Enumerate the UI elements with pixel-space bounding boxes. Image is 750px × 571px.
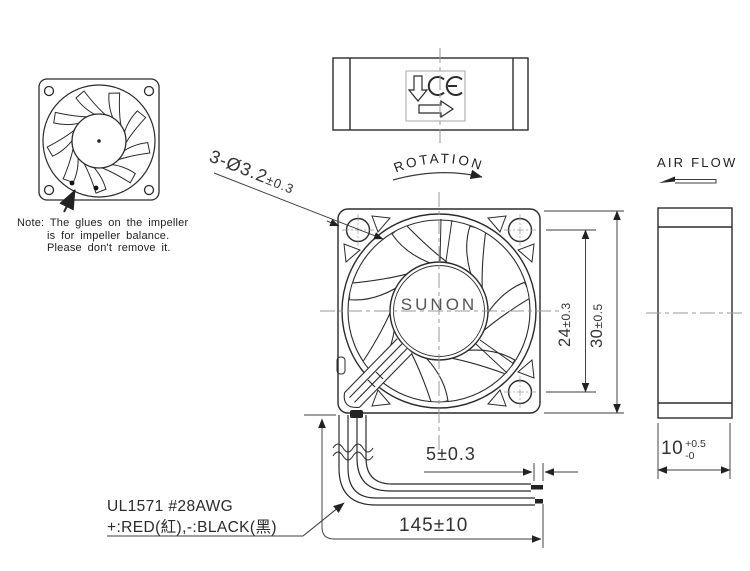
top-view — [333, 58, 528, 130]
rotation-label: ROTATION — [392, 151, 486, 176]
wire-spec-line1: UL1571 #28AWG — [107, 498, 233, 516]
drawing-linework: SUNON ROTATION — [0, 0, 750, 571]
hole-pitch-dimension: 24±0.3 — [556, 302, 575, 347]
wire-length-dimension: 145±10 — [399, 515, 468, 537]
wire-spec-line2: +:RED(紅),-:BLACK(黑) — [107, 515, 277, 537]
wire-spec-leader-arrow — [303, 503, 344, 536]
tinned-lead-end — [535, 499, 543, 504]
hole-leader-arrow — [214, 173, 383, 239]
lead-tin-dimension: 5±0.3 — [426, 444, 476, 465]
impeller-note-line1: Note: The glues on the impeller — [17, 217, 188, 229]
air-flow-label: AIR FLOW — [657, 155, 737, 170]
impeller-note-line2: is for impeller balance. — [47, 230, 169, 242]
fan-technical-drawing: SUNON ROTATION Note: The glues on the im… — [0, 0, 750, 571]
rotation-arrow — [393, 173, 482, 180]
tinned-lead-end — [531, 485, 543, 490]
glue-dot — [94, 186, 99, 191]
hub-brand-label: SUNON — [401, 295, 477, 314]
glue-dot — [70, 181, 75, 186]
frame-depth-dimension: 10 +0.5 -0 — [661, 438, 706, 462]
impeller-note-line3: Please don't remove it. — [47, 242, 171, 254]
air-flow-arrow-icon — [659, 177, 716, 184]
hub-center-dot — [97, 139, 101, 143]
frame-size-dimension: 30±0.5 — [588, 303, 607, 348]
impeller-note-view — [39, 79, 159, 212]
